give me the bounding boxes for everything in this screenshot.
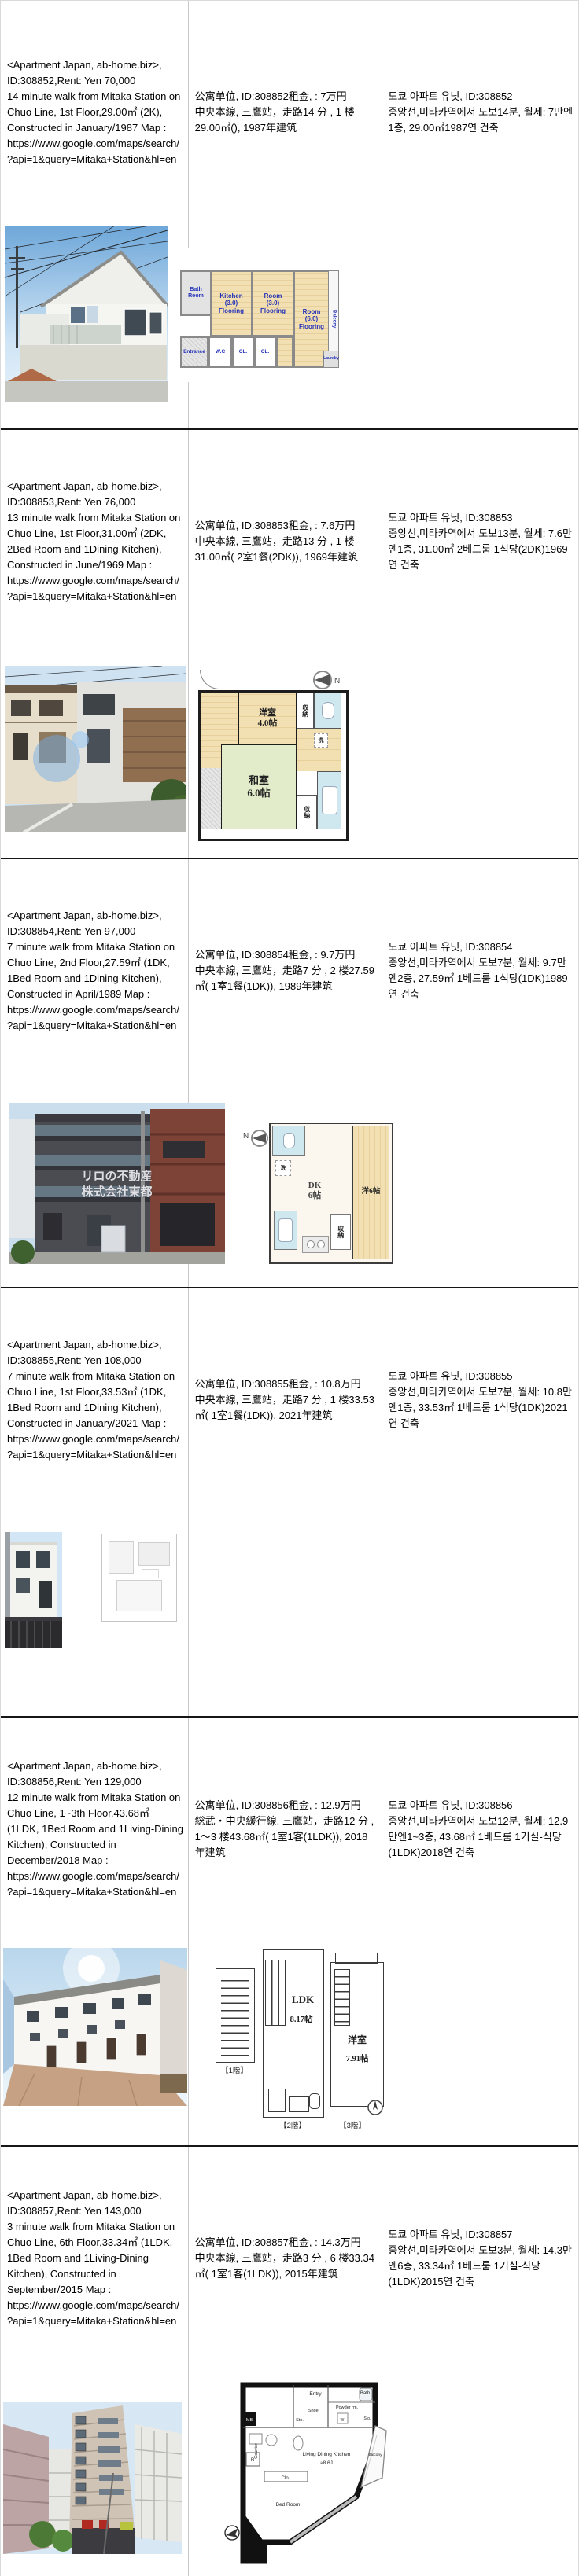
cell-korean: 도쿄 아파트 유닛, ID:308853 중앙선,미타카역에서 도보13분, 월…: [382, 510, 578, 573]
cell-korean: 도쿄 아파트 유닛, ID:308852 중앙선,미타카역에서 도보14분, 월…: [382, 89, 578, 136]
room-label: W: [341, 2418, 345, 2423]
floorplan-room-a: Room (3.0) Flooring: [251, 270, 295, 336]
door-arc: [200, 670, 219, 689]
room-label: MB: [246, 2418, 253, 2423]
floorplan-wc: W.C: [208, 336, 232, 368]
cell-chinese: 公寓单位, ID:308854租金, : 9.7万円 中央本線, 三鷹站，走路7…: [189, 947, 382, 994]
compass-icon: [225, 2526, 239, 2540]
cell-english: <Apartment Japan, ab-home.biz>, ID:30885…: [1, 479, 189, 604]
ldk-size-wrap: 8.17帖: [281, 2013, 322, 2027]
room-label: Laundry: [323, 357, 339, 362]
cell-korean: 도쿄 아파트 유닛, ID:308857 중앙선,미타카역에서 도보3분, 월세…: [382, 2227, 578, 2290]
apartment-description-en: <Apartment Japan, ab-home.biz>, ID:30885…: [7, 479, 184, 604]
apartment-description-zh: 公寓单位, ID:308855租金, : 10.8万円 中央本線, 三鷹站，走路…: [195, 1376, 378, 1424]
compass-north-icon: N: [242, 1129, 269, 1148]
kitchen-counter: [302, 1236, 329, 1253]
floorplan-image: Bath Room Kitchen (3.0) Flooring Room (3…: [179, 248, 341, 382]
north-label: N: [334, 677, 340, 685]
apartment-description-en: <Apartment Japan, ab-home.biz>, ID:30885…: [7, 2188, 184, 2329]
listing-text-row: <Apartment Japan, ab-home.biz>, ID:30885…: [1, 430, 578, 652]
room-label: W.C: [216, 349, 225, 355]
apartment-description-zh: 公寓单位, ID:308857租金, : 14.3万円 中央本線, 三鷹站，走路…: [195, 2235, 378, 2282]
apartment-description-en: <Apartment Japan, ab-home.biz>, ID:30885…: [7, 57, 184, 167]
room-label: Balcony: [331, 310, 337, 328]
floorplan-room: [138, 1542, 170, 1566]
apartment-description-ko: 도쿄 아파트 유닛, ID:308853 중앙선,미타카역에서 도보13분, 월…: [388, 510, 573, 573]
bathtub-icon: [278, 1218, 293, 1242]
room-label: Clo.: [282, 2476, 290, 2481]
room-label: 収納: [303, 806, 311, 818]
floorplan-laundry: Laundry: [323, 351, 339, 368]
room-size-label: ≈8.6J: [320, 2460, 333, 2466]
apartment-description-en: <Apartment Japan, ab-home.biz>, ID:30885…: [7, 908, 184, 1034]
listing-row: <Apartment Japan, ab-home.biz>, ID:30885…: [1, 1, 578, 430]
floorplan-floor3: 洋室 7.91帖: [330, 1962, 384, 2107]
room-label: 洋6帖: [362, 1188, 381, 1196]
room-label: Entry: [309, 2391, 322, 2397]
floorplan-floor2: LDK 8.17帖: [263, 1949, 324, 2118]
floorplan-washer: 洗: [275, 1160, 291, 1176]
floorplan-image: N 洗 DK 6帖: [242, 1119, 392, 1265]
building-photo: [3, 1948, 187, 2106]
floorplan-washer: 洗: [314, 733, 328, 748]
western-label-wrap: 洋室: [337, 2032, 377, 2048]
listing-row: <Apartment Japan, ab-home.biz>, ID:30885…: [1, 430, 578, 859]
room-label: LDK: [292, 1994, 314, 2006]
floorplan-western-room: 洋6帖: [352, 1126, 389, 1259]
floorplan-image: Entry Shoe. Sto. Bath Powder rm. Sto. W …: [221, 2379, 389, 2567]
floorplan-bathroom: [274, 1211, 297, 1250]
apartment-description-ko: 도쿄 아파트 유닛, ID:308856 중앙선,미타카역에서 도보12분, 월…: [388, 1798, 573, 1861]
listing-row: <Apartment Japan, ab-home.biz>, ID:30885…: [1, 1718, 578, 2147]
bathtub-icon: [322, 786, 337, 814]
toilet-icon: [322, 702, 334, 719]
floorplan-room-bath: Bath Room: [180, 270, 212, 316]
building-photo: リロの不動産 株式会社東都: [9, 1103, 225, 1264]
floorplan-image: 【1階】 LDK 8.17帖 【2階】 洋室: [211, 1946, 386, 2130]
cell-english: <Apartment Japan, ab-home.biz>, ID:30885…: [1, 1337, 189, 1463]
floorplan-closet: 収納: [297, 795, 317, 829]
toilet-icon: [283, 1133, 295, 1148]
room-label: 洗: [319, 737, 324, 744]
room-label: Room (6.0) Flooring: [299, 308, 324, 330]
floorplan-room: [116, 1580, 162, 1611]
room-label: Shoe.: [308, 2409, 320, 2413]
apartment-description-zh: 公寓单位, ID:308852租金, : 7万円 中央本線, 三鷹站，走路14 …: [195, 89, 378, 136]
building-photo: [5, 1532, 62, 1648]
sink-icon: [317, 1240, 325, 1248]
room-label: R: [251, 2458, 255, 2463]
listing-row: <Apartment Japan, ab-home.biz>, ID:30885…: [1, 1288, 578, 1718]
floorplan-hall: [276, 336, 293, 368]
building-photo: [5, 666, 186, 832]
room-label: Powder rm.: [336, 2405, 359, 2410]
apartment-description-ko: 도쿄 아파트 유닛, ID:308852 중앙선,미타카역에서 도보14분, 월…: [388, 89, 573, 136]
apartment-description-zh: 公寓单位, ID:308853租金, : 7.6万円 中央本線, 三鷹站，走路1…: [195, 518, 378, 565]
apartment-description-ko: 도쿄 아파트 유닛, ID:308855 중앙선,미타카역에서 도보7분, 월세…: [388, 1369, 573, 1431]
cell-english: <Apartment Japan, ab-home.biz>, ID:30885…: [1, 1758, 189, 1900]
floorplan-image: [101, 1534, 177, 1622]
room-label: Counter: [254, 2443, 259, 2459]
listing-image-row: N 洋室 4.0帖 収納 洗 和室 6.0帖: [1, 652, 578, 856]
room-label: Entrance: [183, 349, 205, 355]
floorplan-tatami-room: 和室 6.0帖: [221, 744, 297, 829]
listing-row: <Apartment Japan, ab-home.biz>, ID:30885…: [1, 859, 578, 1288]
room-label: Bed Room: [276, 2502, 301, 2508]
floorplan-closet: 収納: [297, 693, 314, 729]
toilet-icon: [309, 2093, 320, 2109]
floorplan-entrance: [201, 768, 221, 829]
room-label: 洗: [281, 1165, 286, 1171]
kitchen-fixture: [289, 2096, 309, 2112]
listing-image-row: 【1階】 LDK 8.17帖 【2階】 洋室: [1, 1940, 578, 2144]
cell-chinese: 公寓单位, ID:308853租金, : 7.6万円 中央本線, 三鷹站，走路1…: [189, 518, 382, 565]
listing-image-row: Bath Room Kitchen (3.0) Flooring Room (3…: [1, 223, 578, 427]
cell-chinese: 公寓单位, ID:308852租金, : 7万円 中央本線, 三鷹站，走路14 …: [189, 89, 382, 136]
north-label: N: [243, 1132, 249, 1141]
room-label: CL.: [261, 349, 269, 355]
room-size-label: 8.17帖: [290, 2016, 313, 2026]
cell-korean: 도쿄 아파트 유닛, ID:308856 중앙선,미타카역에서 도보12분, 월…: [382, 1798, 578, 1861]
compass-north-icon: N: [311, 670, 345, 690]
floorplan-toilet: [272, 1126, 305, 1156]
room-size-label: 7.91帖: [346, 2055, 369, 2065]
photo-watermark: リロの不動産 株式会社東都: [9, 1169, 225, 1200]
floorplan-closet: CL.: [254, 336, 276, 368]
room-label: Bath Room: [188, 287, 204, 299]
cell-korean: 도쿄 아파트 유닛, ID:308854 중앙선,미타카역에서 도보7분, 월세…: [382, 939, 578, 1002]
listing-image-row: [1, 1511, 578, 1714]
cell-chinese: 公寓单位, ID:308857租金, : 14.3万円 中央本線, 三鷹站，走路…: [189, 2235, 382, 2282]
building-photo: [5, 226, 168, 402]
floorplan-room-kitchen: Kitchen (3.0) Flooring: [210, 270, 253, 336]
room-label: Living Dining Kitchen: [303, 2452, 351, 2457]
room-label: 洋室: [348, 2034, 367, 2045]
floor-label: 【1階】: [216, 2064, 253, 2075]
listing-text-row: <Apartment Japan, ab-home.biz>, ID:30885…: [1, 1288, 578, 1511]
floorplan-entrance: Entrance: [180, 336, 208, 368]
listings-table: <Apartment Japan, ab-home.biz>, ID:30885…: [0, 0, 579, 2576]
stairs-icon: [221, 1974, 249, 2057]
cell-english: <Apartment Japan, ab-home.biz>, ID:30885…: [1, 908, 189, 1034]
floorplan-outline: 洗 DK 6帖 収納 洋6帖: [269, 1123, 393, 1264]
cell-chinese: 公寓单位, ID:308856租金, : 12.9万円 総武・中央緩行線, 三鷹…: [189, 1798, 382, 1861]
compass-north-icon: [367, 2099, 384, 2116]
apartment-description-zh: 公寓单位, ID:308854租金, : 9.7万円 中央本線, 三鷹站，走路7…: [195, 947, 378, 994]
floorplan-bathroom: [317, 771, 341, 829]
apartment-description-ko: 도쿄 아파트 유닛, ID:308854 중앙선,미타카역에서 도보7분, 월세…: [388, 939, 573, 1002]
room-label: Kitchen (3.0) Flooring: [219, 292, 244, 314]
apartment-description-zh: 公寓单位, ID:308856租金, : 12.9万円 総武・中央緩行線, 三鷹…: [195, 1798, 378, 1861]
floorplan-outline: 洋室 4.0帖 収納 洗 和室 6.0帖 収納: [198, 690, 349, 841]
floorplan-image: N 洋室 4.0帖 収納 洗 和室 6.0帖: [195, 670, 347, 836]
listing-image-row: リロの不動産 株式会社東都 N 洗 DK 6帖: [1, 1082, 578, 1285]
floor-label: 【2階】: [263, 2119, 323, 2130]
ldk-label-wrap: LDK: [284, 1991, 322, 2008]
floorplan-dk: DK 6帖: [293, 1173, 337, 1209]
cell-english: <Apartment Japan, ab-home.biz>, ID:30885…: [1, 2188, 189, 2329]
apartment-description-en: <Apartment Japan, ab-home.biz>, ID:30885…: [7, 1337, 184, 1463]
stove-icon: [307, 1240, 315, 1248]
room-label: DK 6帖: [308, 1181, 322, 1201]
building-photo: [3, 2402, 182, 2554]
floorplan-toilet: [314, 693, 341, 729]
listing-text-row: <Apartment Japan, ab-home.biz>, ID:30885…: [1, 1718, 578, 1940]
room-label: Sto.: [296, 2418, 304, 2423]
bath-fixture: [268, 2089, 286, 2112]
cell-english: <Apartment Japan, ab-home.biz>, ID:30885…: [1, 57, 189, 167]
listing-image-row: Entry Shoe. Sto. Bath Powder rm. Sto. W …: [1, 2369, 578, 2576]
room-label: 和室 6.0帖: [247, 774, 270, 799]
floorplan-fixture: [142, 1569, 159, 1578]
cell-korean: 도쿄 아파트 유닛, ID:308855 중앙선,미타카역에서 도보7분, 월세…: [382, 1369, 578, 1431]
room-label: Balcony: [368, 2453, 382, 2457]
listing-text-row: <Apartment Japan, ab-home.biz>, ID:30885…: [1, 2147, 578, 2369]
room-label: Bath: [360, 2391, 370, 2396]
room-label: 洋室 4.0帖: [258, 708, 278, 729]
floorplan-closet: 収納: [330, 1214, 351, 1250]
cell-chinese: 公寓单位, ID:308855租金, : 10.8万円 中央本線, 三鷹站，走路…: [189, 1376, 382, 1424]
floorplan-room: [109, 1541, 134, 1574]
listing-text-row: <Apartment Japan, ab-home.biz>, ID:30885…: [1, 1, 578, 223]
floorplan-closet: CL.: [232, 336, 254, 368]
stairs-icon: [334, 1969, 350, 2026]
room-label: 収納: [301, 704, 309, 717]
room-label: CL.: [239, 349, 247, 355]
room-label: Room (3.0) Flooring: [260, 292, 286, 314]
apartment-description-ko: 도쿄 아파트 유닛, ID:308857 중앙선,미타카역에서 도보3분, 월세…: [388, 2227, 573, 2290]
apartment-description-en: <Apartment Japan, ab-home.biz>, ID:30885…: [7, 1758, 184, 1900]
western-size-wrap: 7.91帖: [334, 2052, 380, 2067]
floorplan-floor1: [216, 1968, 255, 2063]
floor-label: 【3階】: [330, 2119, 374, 2130]
room-label: 収納: [337, 1226, 345, 1238]
listing-text-row: <Apartment Japan, ab-home.biz>, ID:30885…: [1, 859, 578, 1082]
floorplan-western-room: 洋室 4.0帖: [238, 693, 297, 744]
room-label: Sto.: [364, 2416, 371, 2421]
listing-row: <Apartment Japan, ab-home.biz>, ID:30885…: [1, 2147, 578, 2576]
